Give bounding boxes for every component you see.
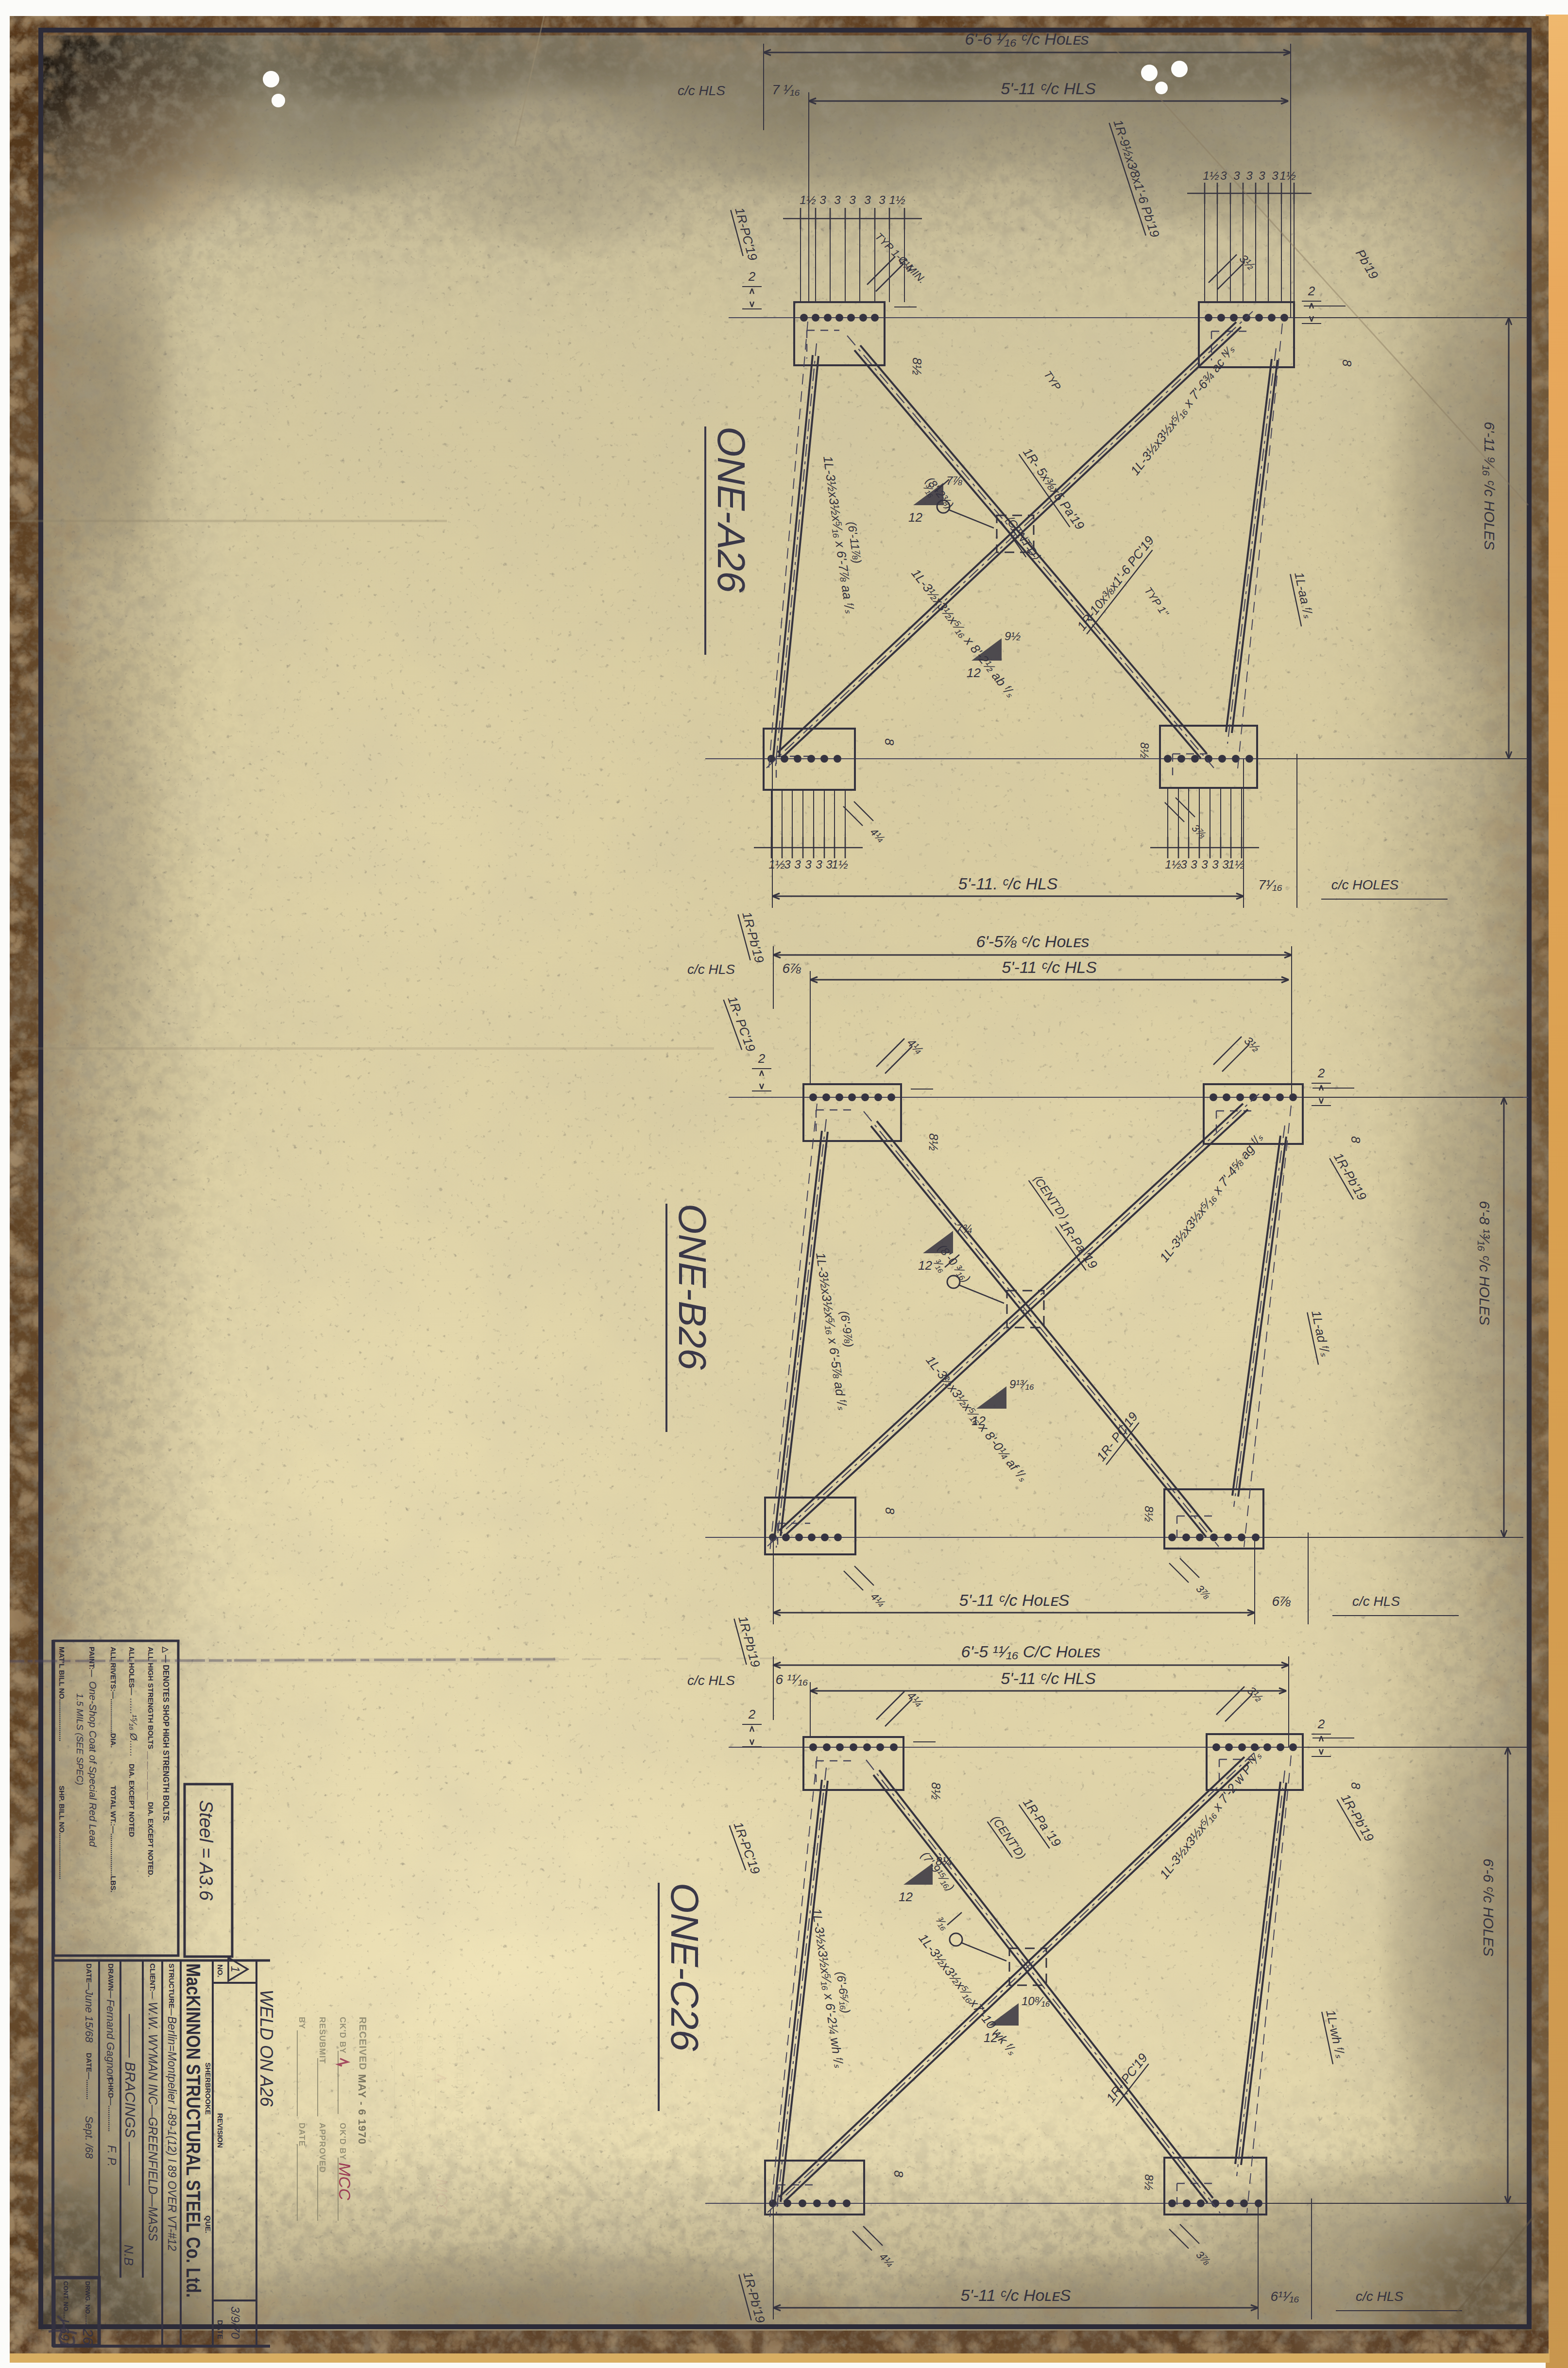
svg-text:8¼: 8¼ (936, 1855, 952, 1868)
svg-text:3: 3 (1180, 858, 1187, 871)
svg-text:2: 2 (1317, 1066, 1325, 1080)
svg-text:3: 3 (1259, 169, 1265, 182)
svg-text:8: 8 (1340, 359, 1354, 367)
svg-text:OK'D BY: OK'D BY (435, 2139, 444, 2176)
svg-text:3: 3 (879, 193, 886, 206)
svg-text:5'-11 ᶜ/ᴄ HLS: 5'-11 ᶜ/ᴄ HLS (1002, 958, 1097, 976)
svg-text:STRUCTURE—: STRUCTURE— (168, 1963, 176, 2016)
svg-text:DIA. EXCEPT NOTED: DIA. EXCEPT NOTED (128, 1764, 136, 1837)
svg-text:MAY - 6 1970: MAY - 6 1970 (356, 2074, 368, 2145)
svg-text:2: 2 (1308, 284, 1315, 298)
svg-text:QUE.: QUE. (204, 2215, 212, 2233)
svg-text:3: 3 (805, 858, 812, 871)
svg-text:3: 3 (1201, 858, 1208, 871)
svg-text:3: 3 (819, 193, 826, 206)
svg-text:7⅞: 7⅞ (946, 474, 962, 487)
svg-text:BY: BY (394, 2033, 404, 2045)
svg-text:8: 8 (883, 1507, 897, 1515)
svg-text:ALL HOLES—: ALL HOLES— (128, 1647, 136, 1695)
svg-text:1½: 1½ (1203, 169, 1219, 182)
svg-text:3: 3 (1246, 169, 1253, 182)
svg-text:6'-5 ¹¹⁄₁₆ C/C Hᴏʟᴇs: 6'-5 ¹¹⁄₁₆ C/C Hᴏʟᴇs (961, 1642, 1101, 1661)
svg-text:8½: 8½ (910, 358, 924, 375)
svg-text:MCC: MCC (336, 2163, 354, 2200)
svg-text:3/9/70: 3/9/70 (229, 2306, 242, 2339)
svg-text:Steel = A3.6: Steel = A3.6 (196, 1800, 216, 1901)
svg-text:BY: BY (297, 2017, 307, 2029)
svg-text:△ — DENOTES SHOP HIGH STRENGTH: △ — DENOTES SHOP HIGH STRENGTH BOLTS. (162, 1646, 170, 1823)
svg-text:2: 2 (748, 269, 756, 284)
svg-text:1½: 1½ (1228, 858, 1244, 871)
svg-text:ONE-A26: ONE-A26 (710, 426, 753, 593)
svg-text:3: 3 (849, 193, 856, 206)
svg-text:CHKD—.............: CHKD—............. (107, 2077, 115, 2132)
svg-text:1½: 1½ (1279, 169, 1295, 182)
svg-text:1½: 1½ (800, 193, 816, 206)
svg-text:Sept. /68: Sept. /68 (83, 2116, 95, 2159)
svg-text:CK'D BY: CK'D BY (435, 2033, 444, 2070)
svg-text:8: 8 (891, 2170, 906, 2178)
svg-text:MacKINNON STRUCTURAL STEEL Co.: MacKINNON STRUCTURAL STEEL Co. Ltd. (183, 1963, 204, 2298)
svg-text:WELD ON A26: WELD ON A26 (256, 1990, 276, 2107)
svg-text:8: 8 (1348, 1782, 1363, 1789)
svg-text:RECEIVED: RECEIVED (455, 2033, 465, 2086)
svg-text:F. P.: F. P. (105, 2145, 119, 2166)
svg-text:3: 3 (1272, 169, 1278, 182)
svg-text:8½: 8½ (1142, 2174, 1156, 2190)
svg-text:DATE: DATE (297, 2123, 307, 2147)
svg-text:SHERBROOKE: SHERBROOKE (204, 2062, 212, 2115)
svg-text:6'-6 ¹⁄₁₆ ᶜ/ᴄ Hᴏʟᴇs: 6'-6 ¹⁄₁₆ ᶜ/ᴄ Hᴏʟᴇs (965, 30, 1089, 48)
svg-text:c/c HLS: c/c HLS (687, 962, 735, 977)
svg-text:5'-11. ᶜ/ᴄ HLS: 5'-11. ᶜ/ᴄ HLS (958, 874, 1057, 893)
svg-text:6'-5⅞ ᶜ/ᴄ Hᴏʟᴇs: 6'-5⅞ ᶜ/ᴄ Hᴏʟᴇs (976, 932, 1089, 951)
svg-text:W.W. WYMAN INC—GREENFIELD—MAS: W.W. WYMAN INC—GREENFIELD—MASS (146, 2002, 160, 2241)
svg-text:RESUBMIT: RESUBMIT (318, 2017, 327, 2064)
svg-text:TOTAL WT.:—...................: TOTAL WT.:—.....................LBS. (109, 1786, 118, 1892)
svg-text:ONE-B26: ONE-B26 (671, 1204, 714, 1370)
svg-text:12: 12 (967, 665, 981, 680)
svg-text:c/c HLS: c/c HLS (1352, 1594, 1400, 1609)
svg-text:DATE—..........: DATE—.......... (85, 2053, 93, 2099)
svg-text:c/c HOLES: c/c HOLES (1331, 877, 1399, 892)
svg-text:12: 12 (908, 510, 922, 525)
svg-text:6'-6 ᶜ/ᴄ HOLES: 6'-6 ᶜ/ᴄ HOLES (1481, 1858, 1497, 1957)
svg-text:One-Shop Coat of Special Red L: One-Shop Coat of Special Red Lead (87, 1681, 99, 1847)
svg-text:3: 3 (864, 193, 871, 206)
svg-text:9½: 9½ (1005, 630, 1021, 643)
svg-text:3: 3 (1191, 858, 1197, 871)
svg-text:DRAWN—: DRAWN— (107, 1963, 115, 1998)
svg-text:7¹⁄₁₆: 7¹⁄₁₆ (1258, 877, 1282, 892)
svg-text:RECEIVED: RECEIVED (358, 2017, 368, 2070)
svg-text:N.B: N.B (121, 2245, 136, 2266)
svg-text:6 ¹¹⁄₁₆: 6 ¹¹⁄₁₆ (776, 1672, 808, 1687)
svg-text:5'-11 ᶜ/ᴄ HLS: 5'-11 ᶜ/ᴄ HLS (1001, 1669, 1096, 1687)
svg-text:SHP. BILL NO..................: SHP. BILL NO....................... (58, 1786, 66, 1879)
svg-text:DATE: DATE (394, 2139, 404, 2163)
svg-text:APPROVED: APPROVED (415, 2139, 424, 2189)
svg-text:MAY - 6 1970: MAY - 6 1970 (453, 2090, 465, 2161)
svg-text:7¾: 7¾ (956, 1222, 972, 1235)
svg-text:12: 12 (971, 1414, 986, 1428)
svg-text:——— BRACINGS ———: ——— BRACINGS ——— (122, 2013, 138, 2186)
svg-text:5'-11 ᶜ/ᴄ HᴏʟᴇS: 5'-11 ᶜ/ᴄ HᴏʟᴇS (959, 1591, 1070, 1609)
svg-text:1.5 MILS (SEE SPEC): 1.5 MILS (SEE SPEC) (75, 1693, 85, 1785)
svg-text:8: 8 (882, 738, 897, 746)
svg-text:3: 3 (834, 193, 841, 206)
svg-text:c/c HLS: c/c HLS (1356, 2289, 1403, 2304)
svg-text:CLIENT:—: CLIENT:— (149, 1963, 157, 1999)
svg-text:1½: 1½ (768, 858, 784, 871)
svg-text:3: 3 (1212, 858, 1219, 871)
svg-text:8½: 8½ (929, 1782, 943, 1800)
svg-text:12: 12 (899, 1890, 913, 1904)
svg-text:3: 3 (784, 858, 791, 871)
svg-text:CONT. NO....: CONT. NO.... (62, 2281, 69, 2318)
svg-text:2: 2 (1317, 1717, 1325, 1731)
svg-text:5'-11 ᶜ/ᴄ HᴏʟᴇS: 5'-11 ᶜ/ᴄ HᴏʟᴇS (961, 2286, 1071, 2304)
svg-text:6'-8 ¹³⁄₁₆ ᶜ/ᴄ HOLES: 6'-8 ¹³⁄₁₆ ᶜ/ᴄ HOLES (1477, 1201, 1493, 1325)
svg-text:5'-11 ᶜ/ᴄ HLS: 5'-11 ᶜ/ᴄ HLS (1001, 79, 1096, 98)
svg-text:1½: 1½ (832, 858, 848, 871)
svg-text:9¹³⁄₁₆: 9¹³⁄₁₆ (1009, 1378, 1034, 1391)
svg-text:3: 3 (794, 858, 801, 871)
svg-text:CK'D BY: CK'D BY (338, 2017, 347, 2054)
svg-text:MCC: MCC (433, 2179, 451, 2216)
svg-text:12: 12 (984, 2030, 998, 2045)
svg-text:......¹⁵⁄₁₆ Ø......: ......¹⁵⁄₁₆ Ø...... (128, 1698, 139, 1757)
svg-text:REVISION: REVISION (216, 2113, 224, 2148)
svg-text:2: 2 (758, 1051, 766, 1066)
svg-text:6⅞: 6⅞ (783, 961, 801, 976)
svg-text:1: 1 (229, 1966, 242, 1972)
svg-text:6'-11 ⁹⁄₁₆ ᶜ/ᴄ HOLES: 6'-11 ⁹⁄₁₆ ᶜ/ᴄ HOLES (1482, 422, 1498, 550)
svg-text:6⅞: 6⅞ (1272, 1594, 1291, 1609)
svg-text:DRWG. NO.......: DRWG. NO....... (84, 2281, 91, 2326)
svg-text:DATE: DATE (216, 2320, 224, 2339)
svg-text:7 ¹⁄₁₆: 7 ¹⁄₁₆ (772, 82, 800, 97)
svg-text:12: 12 (918, 1258, 932, 1273)
svg-text:8: 8 (1348, 1136, 1363, 1143)
svg-text:3: 3 (816, 858, 822, 871)
svg-text:26: 26 (80, 2328, 96, 2345)
svg-text:APPROVED: APPROVED (318, 2123, 327, 2173)
svg-text:Berlin=Montpelier I-89-1(12): Berlin=Montpelier I-89-1(12) I 89 OVER V… (166, 2016, 178, 2251)
svg-text:8½: 8½ (1138, 742, 1151, 758)
svg-text:c/c HLS: c/c HLS (678, 83, 725, 98)
svg-text:ALL HIGH STRENGTH BOLTS __ __: ALL HIGH STRENGTH BOLTS __ __ __ __ __ D… (147, 1647, 155, 1877)
svg-text:2: 2 (748, 1707, 756, 1721)
svg-text:c/c HLS: c/c HLS (687, 1673, 735, 1688)
svg-text:RESUBMIT: RESUBMIT (415, 2033, 424, 2080)
svg-text:8½: 8½ (926, 1133, 941, 1151)
svg-text:1½: 1½ (889, 193, 905, 206)
svg-text:DATE—: DATE— (85, 1963, 93, 1990)
svg-text:10⁸⁄₁₆: 10⁸⁄₁₆ (1022, 1994, 1050, 2008)
svg-text:June 15/68: June 15/68 (83, 1989, 95, 2043)
svg-text:ONE-C26: ONE-C26 (663, 1883, 706, 2051)
svg-text:6¹¹⁄₁₆: 6¹¹⁄₁₆ (1271, 2289, 1299, 2304)
svg-text:1½: 1½ (1165, 858, 1181, 871)
svg-text:OK'D BY: OK'D BY (338, 2123, 347, 2160)
svg-text:8½: 8½ (1142, 1506, 1156, 1522)
svg-text:NO.: NO. (216, 1964, 224, 1977)
svg-text:Fernand Gagnon: Fernand Gagnon (104, 1999, 117, 2080)
